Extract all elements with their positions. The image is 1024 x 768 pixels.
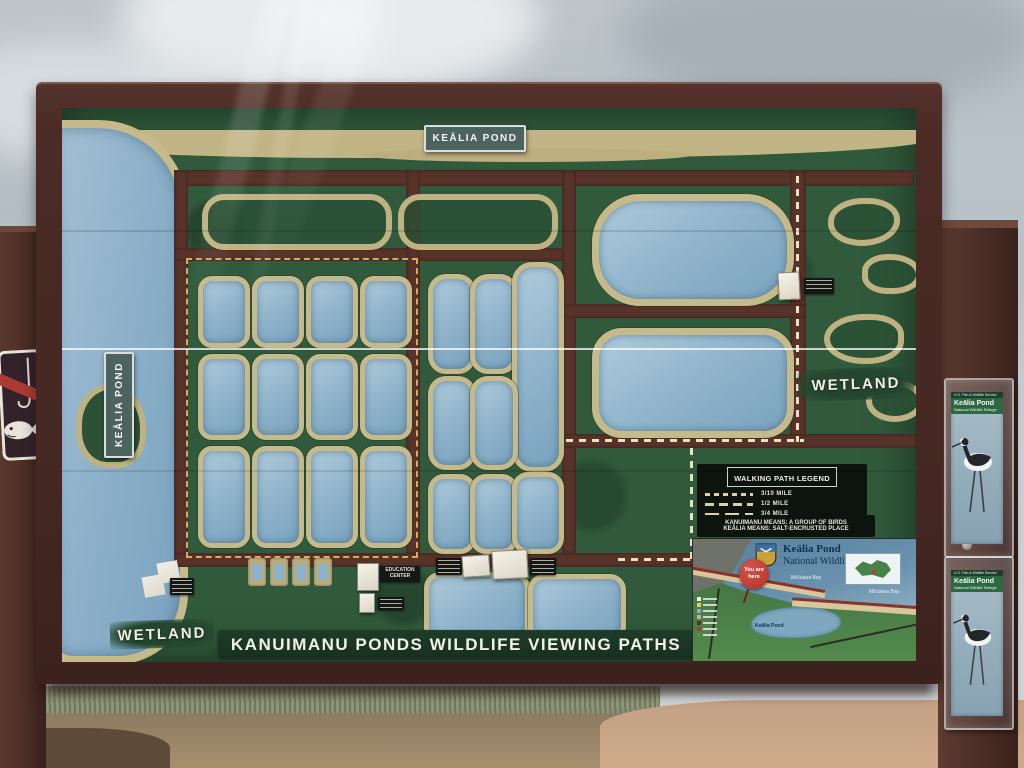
mini-pond-cell (270, 558, 288, 586)
inset-legend-line (703, 610, 717, 612)
building-marker (461, 554, 490, 578)
building-marker (359, 593, 375, 613)
legend-item: 3/10 MILE (697, 489, 867, 499)
you-are-here-text: You are here (744, 567, 764, 580)
legend-dash (705, 493, 753, 496)
inset-legend-swatch (697, 609, 701, 613)
building-marker (491, 549, 528, 580)
brochure: U.S. Fish & Wildlife Service Keālia Pond… (951, 392, 1003, 544)
wetland-label-right: WETLAND (797, 366, 914, 402)
pond (252, 354, 304, 440)
walking-path-dashed (618, 558, 692, 561)
pond (360, 276, 412, 348)
building-label-tag (804, 278, 834, 294)
stilt-bird-illustration (951, 414, 1003, 524)
inset-legend-line (703, 616, 717, 618)
sign-frame: EDUCATION CENTER KEĀLIA POND KEĀLIA POND… (36, 82, 942, 684)
inset-legend-line (703, 598, 717, 600)
pond (428, 376, 476, 470)
kealia-pond-top-plaque: KEĀLIA POND (424, 125, 526, 152)
inset-legend-swatch (697, 597, 701, 601)
brochure-subtitle: National Wildlife Refuge (954, 407, 1000, 412)
pond (470, 474, 518, 554)
inset-bay-label: Mā'alaea Bay (791, 575, 821, 581)
scratch-line (62, 348, 916, 350)
pond (470, 274, 518, 374)
walking-path-dashed (566, 439, 804, 442)
inset-legend-swatch (697, 621, 701, 625)
brochure-title: Keālia Pond (954, 578, 1000, 585)
inset-legend-swatch (697, 627, 701, 631)
inset-legend-line (703, 628, 717, 630)
kealia-pond-top-label: KEĀLIA POND (432, 133, 517, 144)
dry-pond-cell (398, 194, 558, 250)
inset-legend-line (703, 604, 717, 606)
pond (512, 472, 564, 554)
building-label-tag (378, 597, 404, 610)
wetland-label-bottom: WETLAND (110, 618, 215, 650)
wetland-bottom-text: WETLAND (117, 624, 207, 644)
maui-you-are-here-dot (872, 570, 876, 574)
legend-item-label: 3/10 MILE (761, 491, 792, 497)
inset-legend-line (703, 622, 717, 624)
legend-note: KEĀLIA MEANS: SALT-ENCRUSTED PLACE (723, 526, 848, 532)
levee-path (562, 304, 806, 318)
pond (306, 276, 358, 348)
board-seam (62, 230, 916, 232)
building-label-tag (436, 558, 462, 575)
wetland-right-text: WETLAND (811, 374, 901, 394)
wetland-patch (828, 198, 900, 246)
brochure: U.S. Fish & Wildlife Service Keālia Pond… (951, 570, 1003, 716)
big-pond (592, 328, 794, 438)
pond (198, 446, 250, 548)
levee-path (562, 170, 576, 554)
kealia-pond-left-plaque: KEĀLIA POND (104, 352, 134, 458)
walking-path-dashed (796, 176, 799, 442)
painted-map: EDUCATION CENTER KEĀLIA POND KEĀLIA POND… (62, 108, 916, 662)
education-center-building (357, 563, 379, 591)
brochure-title: Keālia Pond (954, 400, 1000, 407)
legend-title-text: WALKING PATH LEGEND (734, 474, 830, 483)
wetland-patch (824, 314, 904, 364)
inset-bay-label: Mā'alaea Bay (869, 589, 899, 595)
pond (360, 446, 412, 548)
pond (306, 354, 358, 440)
big-pond (592, 194, 794, 306)
inset-map: Keālia Pond Mā'alaea Bay Mā'alaea Bay Ke… (692, 538, 916, 662)
maui-inset (845, 553, 901, 585)
pond (360, 354, 412, 440)
building-label-tag (170, 578, 194, 595)
inset-legend-swatch (697, 633, 701, 637)
brochure-subtitle: National Wildlife Refuge (954, 585, 1000, 590)
mini-pond-cell (314, 558, 332, 586)
legend-item: 1/2 MILE (697, 499, 867, 509)
legend-dash (705, 503, 753, 506)
brochure-holder: U.S. Fish & Wildlife Service Keālia Pond… (944, 378, 1014, 558)
you-are-here-marker: You are here (739, 559, 769, 589)
education-center-label: EDUCATION CENTER (381, 567, 419, 579)
pond (428, 274, 476, 374)
board-seam (62, 470, 916, 472)
pond (252, 276, 304, 348)
inset-legend-swatch (697, 603, 701, 607)
shore-band-top2 (362, 148, 692, 162)
education-center-tag: EDUCATION CENTER (380, 566, 420, 582)
brochure-holder: U.S. Fish & Wildlife Service Keālia Pond… (944, 556, 1014, 730)
wetland-patch (862, 254, 916, 294)
pond (512, 262, 564, 472)
inset-legend-swatch (697, 615, 701, 619)
inset-legend-line (703, 634, 717, 636)
pond (428, 474, 476, 554)
photo-of-trailhead-map-sign: U.S. Fish & Wildlife Service Keālia Pond… (0, 0, 1024, 768)
inset-pond-label: Keālia Pond (755, 623, 784, 629)
pond (198, 276, 250, 348)
dry-pond-cell (202, 194, 392, 250)
inset-legend (697, 597, 717, 637)
pond (306, 446, 358, 548)
pond (470, 376, 518, 470)
pond (198, 354, 250, 440)
building-label-tag (530, 558, 556, 575)
sign-title: KANUIMANU PONDS WILDLIFE VIEWING PATHS (231, 635, 681, 655)
pond (252, 446, 304, 548)
legend-item-label: 1/2 MILE (761, 501, 789, 507)
title-banner: KANUIMANU PONDS WILDLIFE VIEWING PATHS (218, 630, 694, 659)
stilt-bird-illustration (951, 592, 1003, 696)
mini-pond-cell (292, 558, 310, 586)
building-marker (777, 271, 800, 300)
kealia-pond-left-label: KEĀLIA POND (114, 362, 125, 447)
maui-island (855, 560, 891, 578)
legend-notes: KANUIMANU MEANS: A GROUP OF BIRDS KEĀLIA… (697, 515, 875, 537)
mini-pond-cell (248, 558, 266, 586)
